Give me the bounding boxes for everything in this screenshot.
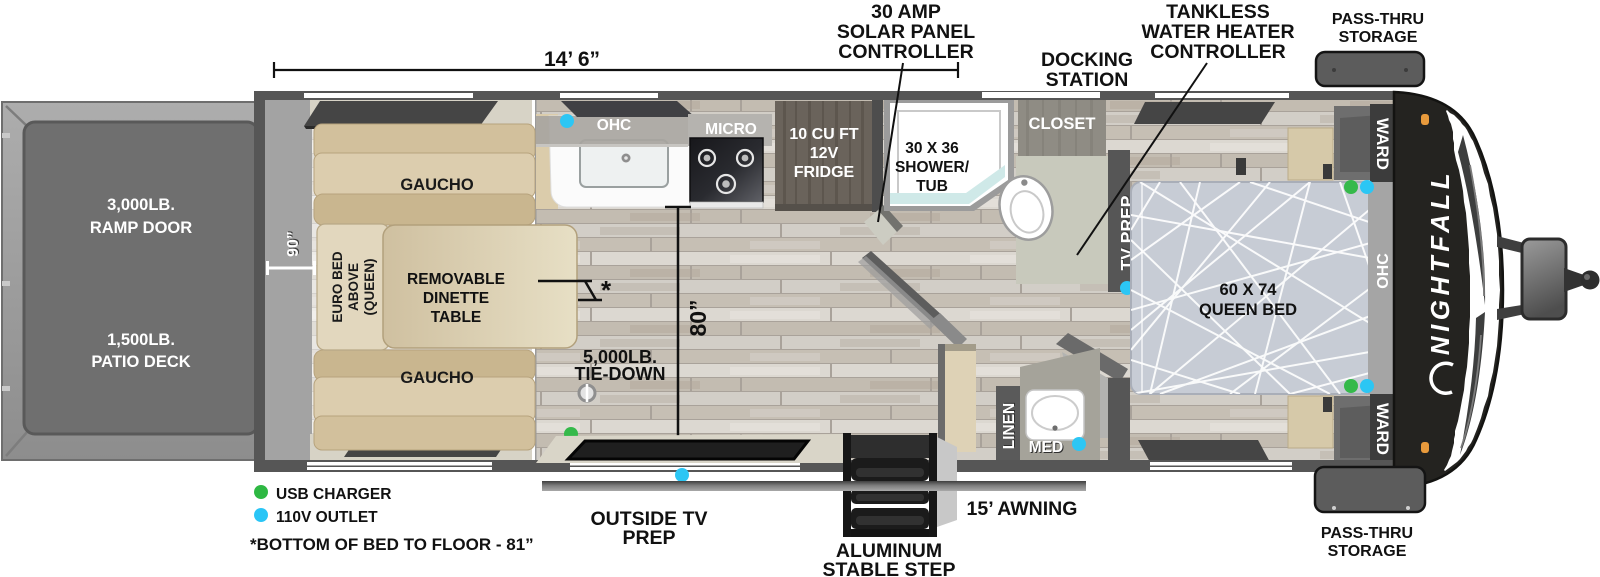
svg-text:WARD: WARD <box>1373 118 1392 170</box>
svg-text:15’ AWNING: 15’ AWNING <box>967 498 1078 520</box>
svg-text:10 CU FT: 10 CU FT <box>789 126 859 143</box>
svg-text:PATIO DECK: PATIO DECK <box>91 353 190 371</box>
svg-text:30 AMP: 30 AMP <box>871 1 941 23</box>
svg-text:80”: 80” <box>685 299 711 336</box>
svg-text:(QUEEN): (QUEEN) <box>362 259 377 316</box>
svg-text:TANKLESS: TANKLESS <box>1166 1 1270 23</box>
svg-text:3,000LB.: 3,000LB. <box>107 196 175 214</box>
svg-text:PASS-THRU: PASS-THRU <box>1332 11 1424 28</box>
svg-text:TUB: TUB <box>916 178 948 195</box>
svg-text:MED: MED <box>1029 439 1063 456</box>
svg-text:GAUCHO: GAUCHO <box>400 176 473 194</box>
svg-text:*BOTTOM OF BED TO FLOOR - 81”: *BOTTOM OF BED TO FLOOR - 81” <box>250 535 534 554</box>
svg-text:110V OUTLET: 110V OUTLET <box>276 509 378 526</box>
svg-text:SHOWER/: SHOWER/ <box>895 159 970 176</box>
svg-text:1,500LB.: 1,500LB. <box>107 331 175 349</box>
svg-text:14’ 6”: 14’ 6” <box>544 48 600 71</box>
svg-text:DOCKING: DOCKING <box>1041 49 1133 71</box>
svg-text:NIGHTFALL: NIGHTFALL <box>1425 169 1455 355</box>
svg-text:ABOVE: ABOVE <box>346 263 361 311</box>
svg-text:OHC: OHC <box>597 117 631 134</box>
svg-text:PASS-THRU: PASS-THRU <box>1321 525 1413 542</box>
svg-text:WATER HEATER: WATER HEATER <box>1141 21 1294 43</box>
svg-text:TABLE: TABLE <box>431 309 482 326</box>
svg-text:QUEEN BED: QUEEN BED <box>1199 301 1297 319</box>
svg-text:STORAGE: STORAGE <box>1328 543 1407 560</box>
svg-text:OHC: OHC <box>1375 253 1392 289</box>
svg-text:60 X 74: 60 X 74 <box>1220 281 1278 299</box>
svg-text:CONTROLLER: CONTROLLER <box>838 41 973 63</box>
svg-text:MICRO: MICRO <box>705 121 757 138</box>
svg-text:REMOVABLE: REMOVABLE <box>407 271 505 288</box>
svg-text:12V: 12V <box>810 145 839 162</box>
svg-text:*: * <box>601 275 612 305</box>
svg-text:WARD: WARD <box>1373 403 1392 455</box>
svg-text:FRIDGE: FRIDGE <box>794 164 855 181</box>
svg-text:LINEN: LINEN <box>1001 403 1018 450</box>
svg-text:STATION: STATION <box>1046 69 1129 91</box>
svg-text:TIE-DOWN: TIE-DOWN <box>575 364 666 384</box>
svg-text:GAUCHO: GAUCHO <box>400 369 473 387</box>
svg-text:USB CHARGER: USB CHARGER <box>276 486 391 503</box>
svg-text:DINETTE: DINETTE <box>423 290 489 307</box>
svg-text:CONTROLLER: CONTROLLER <box>1150 41 1285 63</box>
svg-text:PREP: PREP <box>622 527 675 549</box>
svg-text:STABLE STEP: STABLE STEP <box>823 559 956 577</box>
svg-text:SOLAR PANEL: SOLAR PANEL <box>837 21 975 43</box>
svg-text:CLOSET: CLOSET <box>1029 115 1096 133</box>
svg-text:STORAGE: STORAGE <box>1339 29 1418 46</box>
svg-text:RAMP DOOR: RAMP DOOR <box>90 219 192 237</box>
svg-text:90”: 90” <box>285 231 302 257</box>
svg-text:EURO BED: EURO BED <box>330 251 345 323</box>
svg-text:30 X 36: 30 X 36 <box>905 140 959 157</box>
